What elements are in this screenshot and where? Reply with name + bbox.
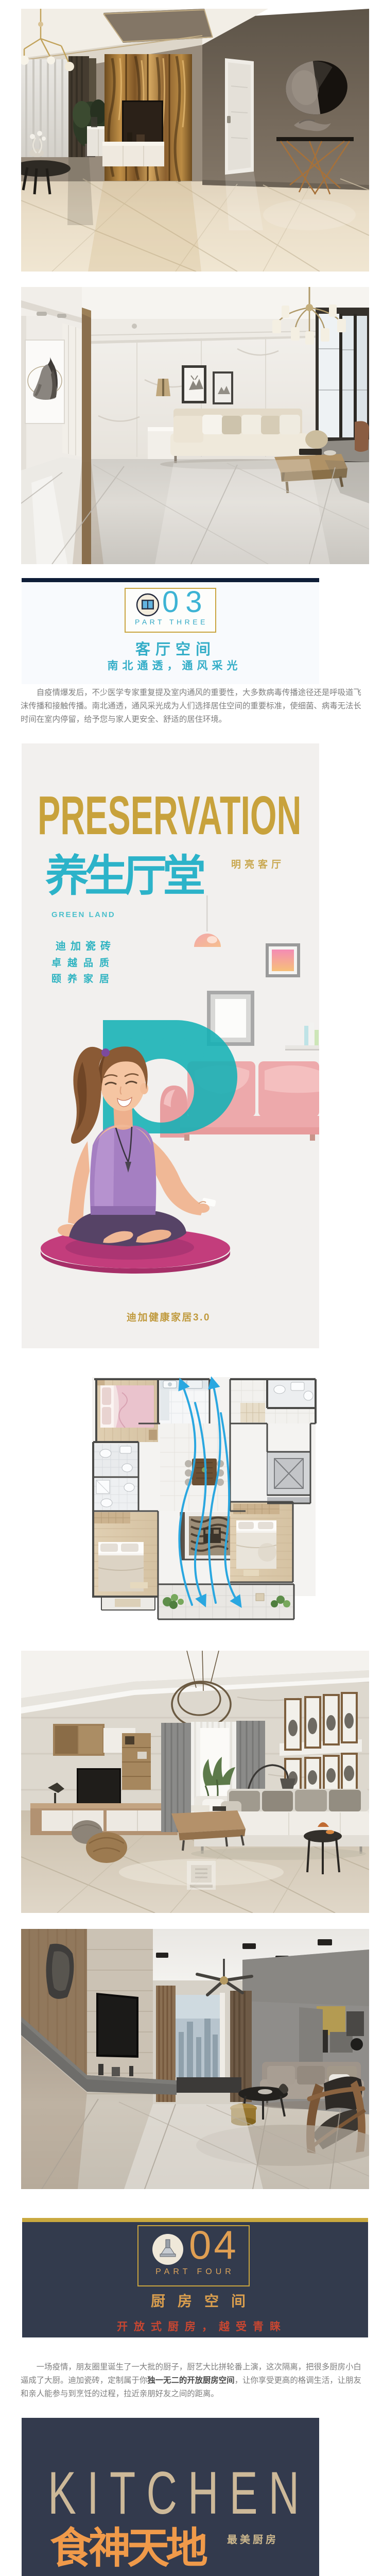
svg-text:养生厅堂: 养生厅堂 — [45, 852, 204, 900]
svg-text:迪加健康家居3.0: 迪加健康家居3.0 — [127, 1311, 211, 1323]
svg-text:明亮客厅: 明亮客厅 — [231, 858, 285, 870]
svg-text:迪加瓷砖: 迪加瓷砖 — [56, 940, 115, 952]
svg-text:卓越品质: 卓越品质 — [51, 957, 115, 969]
svg-text:PRESERVATION: PRESERVATION — [38, 785, 301, 846]
svg-text:颐养家居: 颐养家居 — [51, 973, 115, 985]
svg-text:食神天地: 食神天地 — [50, 2525, 207, 2572]
svg-text:最美厨房: 最美厨房 — [227, 2533, 278, 2546]
svg-text:KITCHEN: KITCHEN — [48, 2460, 310, 2527]
svg-text:GREEN LAND: GREEN LAND — [51, 910, 115, 919]
